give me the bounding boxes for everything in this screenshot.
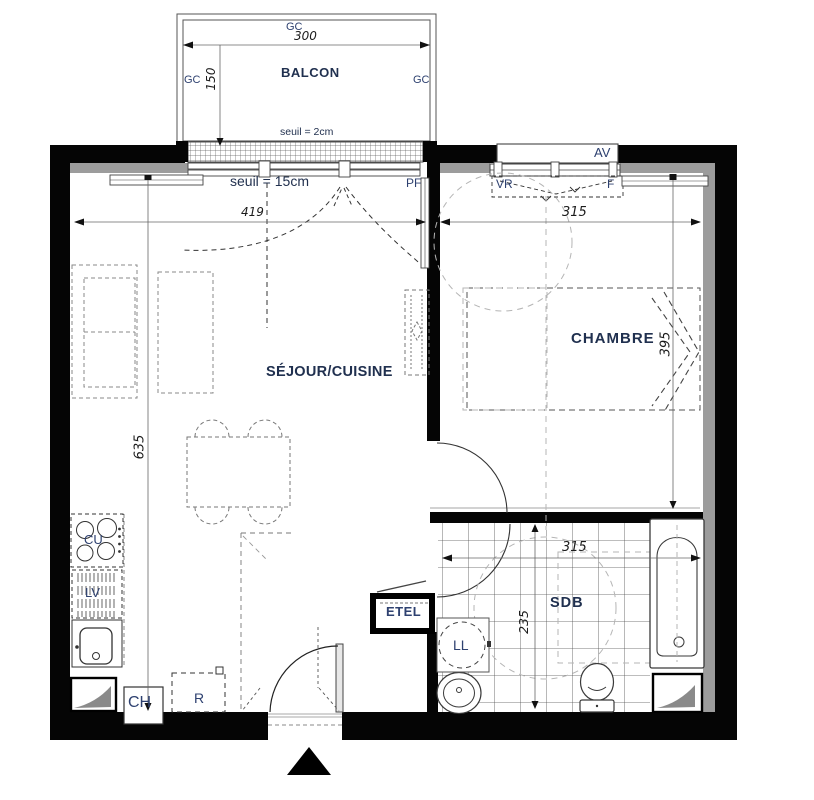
pf-label: PF (406, 177, 421, 189)
boiler-label: CH (128, 695, 151, 711)
room-label-balcony: BALCON (281, 66, 340, 79)
gc-label-right: GC (413, 75, 430, 86)
entrance-door (242, 627, 343, 725)
electrical-panel-label: ETEL (386, 605, 421, 618)
toilet (580, 664, 614, 713)
washbasin (437, 673, 481, 714)
vr-label: VR (496, 178, 513, 190)
washing-machine-label: LL (453, 638, 469, 652)
bedroom-clearance (434, 173, 572, 530)
threshold-note-balcony: seuil = 2cm (280, 127, 333, 138)
duct-shaft-left (71, 678, 116, 711)
threshold-note-living: seuil = 15cm (230, 174, 309, 188)
dim-living-length: 635 (134, 435, 147, 460)
av-label: AV (594, 146, 610, 159)
floor-plan-drawing (0, 0, 814, 800)
sofa (72, 265, 137, 398)
gc-label-left: GC (184, 75, 201, 86)
radiator-living (110, 175, 203, 185)
fridge-label: R (194, 691, 204, 705)
balcony-threshold-hatch (176, 141, 437, 162)
room-label-bedroom: CHAMBRE (571, 331, 655, 346)
duct-shaft-right (653, 674, 702, 712)
dim-balcony-width: 300 (294, 30, 317, 42)
dim-bathroom-width: 315 (562, 541, 587, 554)
bathtub (650, 519, 704, 668)
room-label-living-kitchen: SÉJOUR/CUISINE (266, 365, 393, 380)
tall-unit (405, 290, 429, 375)
kitchen-sink (72, 620, 122, 667)
f-label: F (607, 178, 614, 190)
dim-bathroom-depth: 235 (518, 610, 531, 634)
dim-balcony-depth: 150 (205, 68, 217, 91)
radiator-bedroom (622, 176, 708, 186)
entrance-arrow (287, 747, 331, 775)
floor-plan: GC 300 GC GC 150 BALCON seuil = 2cm seui… (0, 0, 814, 800)
dim-bedroom-length: 395 (660, 332, 673, 357)
dim-bedroom-width: 315 (562, 206, 587, 219)
room-label-bathroom: SDB (550, 596, 584, 611)
dishwasher-label: LV (85, 586, 100, 599)
dim-living-width: 419 (241, 206, 264, 218)
bedroom-door (437, 443, 507, 513)
cooktop-label: CU (84, 533, 103, 546)
dining-table (187, 420, 290, 524)
kitchen-zone-dashed (241, 533, 292, 712)
low-cabinet (158, 272, 213, 393)
